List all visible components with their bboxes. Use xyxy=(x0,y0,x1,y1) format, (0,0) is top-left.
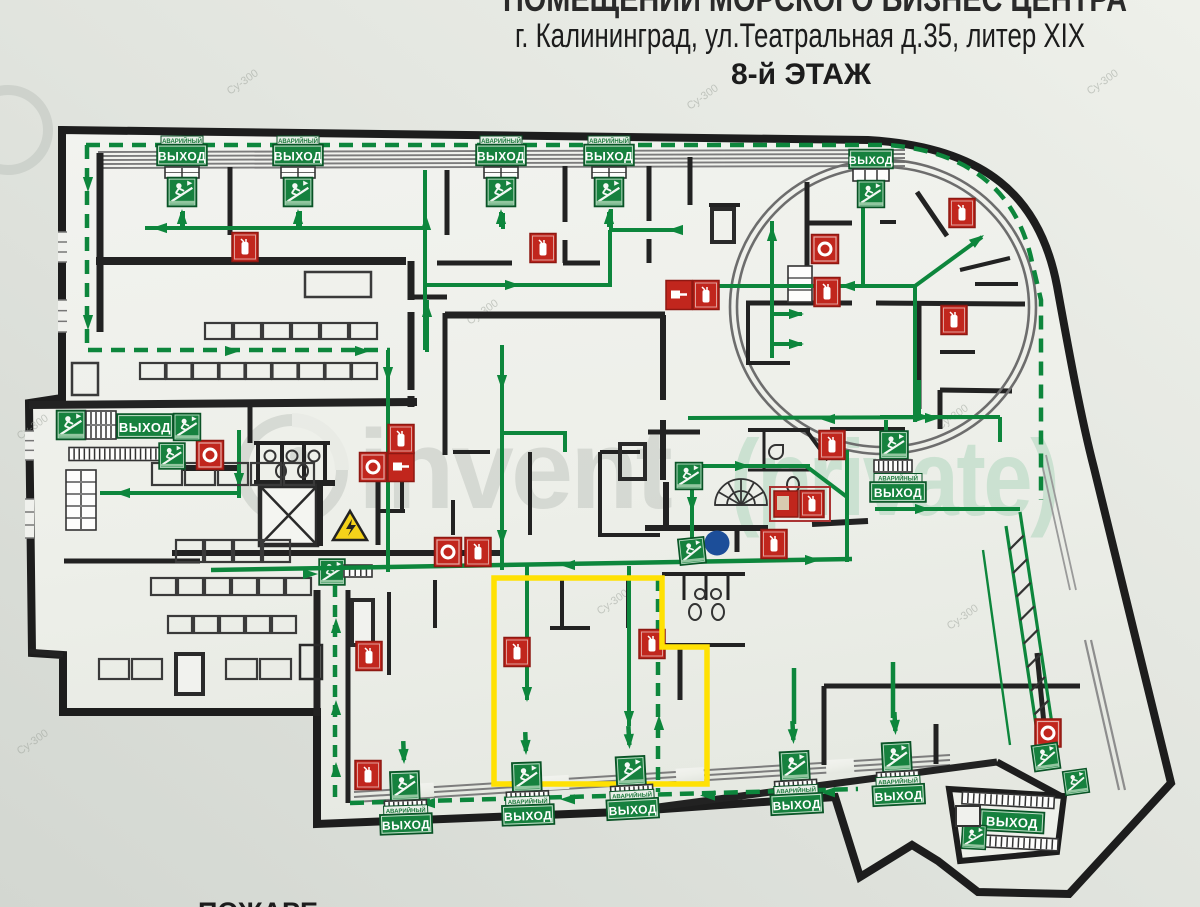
svg-text:ВЫХОД: ВЫХОД xyxy=(382,817,431,833)
svg-text:ВЫХОД: ВЫХОД xyxy=(504,808,553,824)
svg-text:ВЫХОД: ВЫХОД xyxy=(986,814,1039,832)
svg-text:г. Калининград, ул.Театральная: г. Калининград, ул.Театральная д.35, лит… xyxy=(515,17,1085,55)
svg-text:ВЫХОД: ВЫХОД xyxy=(585,150,633,164)
svg-text:ВЫХОД: ВЫХОД xyxy=(772,797,821,814)
svg-text:ВЫХОД: ВЫХОД xyxy=(608,802,657,819)
svg-text:ВЫХОД: ВЫХОД xyxy=(274,150,322,164)
svg-text:ВЫХОД: ВЫХОД xyxy=(119,420,171,435)
svg-text:8-й ЭТАЖ: 8-й ЭТАЖ xyxy=(731,58,872,91)
svg-text:ВЫХОД: ВЫХОД xyxy=(874,486,922,500)
svg-text:ВЫХОД: ВЫХОД xyxy=(849,155,894,167)
svg-text:ПОЖАРЕ: ПОЖАРЕ xyxy=(198,897,318,907)
svg-text:ВЫХОД: ВЫХОД xyxy=(874,788,923,805)
svg-text:ВЫХОД: ВЫХОД xyxy=(158,150,206,164)
svg-text:ВЫХОД: ВЫХОД xyxy=(477,150,525,164)
